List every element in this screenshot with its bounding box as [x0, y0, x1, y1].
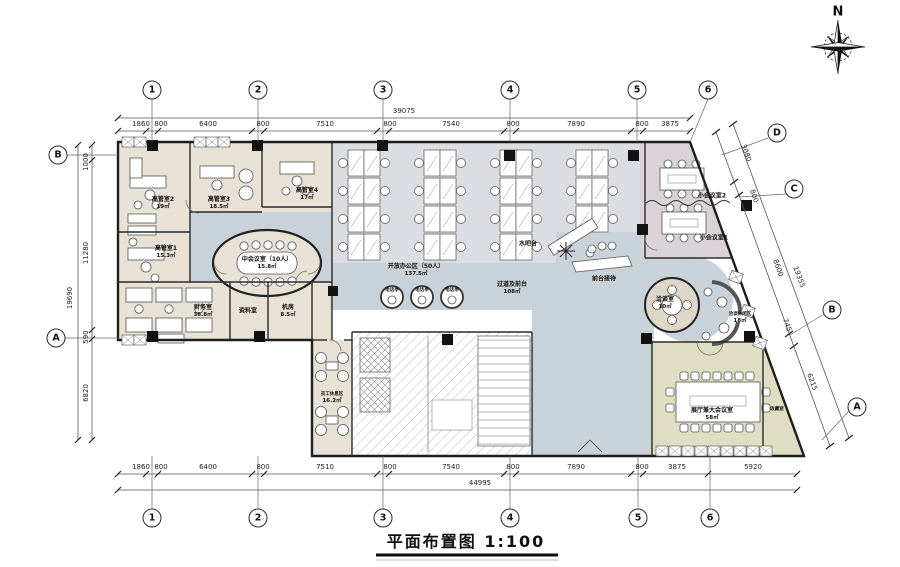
- grid-bubble-bottom-4: 4: [501, 509, 520, 528]
- label-exec4: 高管室417㎡: [296, 187, 318, 201]
- dim-top-2: 6400: [199, 120, 217, 128]
- grid-bubble-top-6: 6: [699, 81, 718, 100]
- dim-bottom-5: 800: [383, 463, 396, 471]
- label-reception: 前台接待: [592, 275, 616, 283]
- dim-top-9: 800: [635, 120, 648, 128]
- label-exec2: 高管室219㎡: [152, 196, 174, 210]
- dim-left-0: 1000: [82, 153, 90, 171]
- grid-bubble-bottom-2: 2: [249, 509, 268, 528]
- dim-top-4: 7510: [316, 120, 334, 128]
- label-small-meeting1: 小会议室1: [700, 234, 728, 242]
- label-negotiation: 洽谈室10㎡: [656, 296, 674, 310]
- label-finance: 财务室36.8㎡: [193, 304, 212, 318]
- dim-top-total: 39075: [393, 107, 415, 115]
- grid-bubble-left-B: B: [49, 146, 68, 165]
- label-phone-booth-1: 电话亭: [385, 288, 399, 294]
- label-lounge: 洽谈休闲区18㎡: [729, 312, 752, 325]
- compass-rose: [811, 20, 865, 74]
- dim-left-3: 6820: [82, 384, 90, 402]
- plan-drawing: [0, 0, 900, 567]
- dim-bottom-4: 7510: [316, 463, 334, 471]
- label-water-bar: 水吧台: [519, 240, 537, 248]
- dim-top-0: 1860: [132, 120, 150, 128]
- dim-bottom-total: 44995: [469, 479, 491, 487]
- dim-bottom-7: 800: [506, 463, 519, 471]
- floor-plan-sheet: 1 2 3 4 5 6 1 2 3 4 5 6 B A D C B A 1860…: [0, 0, 900, 567]
- dim-bottom-3: 800: [256, 463, 269, 471]
- label-exec1: 高管室115.3㎡: [155, 245, 177, 259]
- grid-bubble-right-B: B: [823, 301, 842, 320]
- label-exec3: 高管室318.5㎡: [208, 196, 230, 210]
- printer: [158, 334, 184, 343]
- dim-bottom-6: 7540: [442, 463, 460, 471]
- label-storage: 收藏室: [770, 407, 784, 413]
- dim-left-total: 19690: [66, 287, 74, 309]
- dim-bottom-9: 800: [635, 463, 648, 471]
- grid-bubble-bottom-6: 6: [701, 509, 720, 528]
- label-archive: 资料室: [239, 307, 257, 315]
- grid-bubble-top-1: 1: [143, 81, 162, 100]
- north-label: N: [833, 5, 844, 20]
- grid-bubble-bottom-5: 5: [629, 509, 648, 528]
- dim-bottom-8: 7890: [567, 463, 585, 471]
- grid-bubble-top-3: 3: [374, 81, 393, 100]
- dim-top-6: 7540: [442, 120, 460, 128]
- dim-left-1: 11280: [82, 242, 90, 264]
- label-mid-meeting: 中会议室（10人）15.8㎡: [242, 256, 292, 270]
- dim-top-10: 3875: [661, 120, 679, 128]
- dim-top-3: 800: [256, 120, 269, 128]
- grid-bubble-bottom-1: 1: [143, 509, 162, 528]
- label-phone-booth-3: 电话亭: [445, 288, 459, 294]
- dim-top-8: 7890: [567, 120, 585, 128]
- label-exhibition: 展厅兼大会议室58㎡: [691, 407, 733, 421]
- label-server: 机房8.5㎡: [280, 304, 295, 318]
- page-title: 平面布置图 1:100: [387, 528, 546, 552]
- dim-bottom-11: 5920: [744, 463, 762, 471]
- dim-bottom-10: 3875: [668, 463, 686, 471]
- label-staff-rest: 员工休息区16.2㎡: [321, 392, 344, 405]
- grid-bubble-top-4: 4: [501, 81, 520, 100]
- grid-bubble-right-D: D: [768, 124, 787, 143]
- dim-left-2: 590: [82, 330, 90, 343]
- grid-bubble-top-5: 5: [628, 81, 647, 100]
- dim-top-5: 800: [383, 120, 396, 128]
- dim-bottom-1: 800: [154, 463, 167, 471]
- grid-bubble-top-2: 2: [249, 81, 268, 100]
- dim-top-7: 800: [506, 120, 519, 128]
- title-underline: [376, 555, 558, 560]
- dim-top-1: 800: [154, 120, 167, 128]
- dim-bottom-0: 1860: [132, 463, 150, 471]
- dim-bottom-2: 6400: [199, 463, 217, 471]
- label-corridor: 过道及前台108㎡: [497, 281, 527, 295]
- label-small-meeting2: 小会议室2: [698, 192, 726, 200]
- grid-bubble-bottom-3: 3: [374, 509, 393, 528]
- label-open-office: 开放办公区（50人）137.5㎡: [388, 263, 444, 277]
- label-phone-booth-2: 电话亭: [415, 288, 429, 294]
- grid-bubble-left-A: A: [47, 329, 66, 348]
- grid-bubble-right-A: A: [848, 398, 867, 417]
- grid-bubble-right-C: C: [785, 180, 804, 199]
